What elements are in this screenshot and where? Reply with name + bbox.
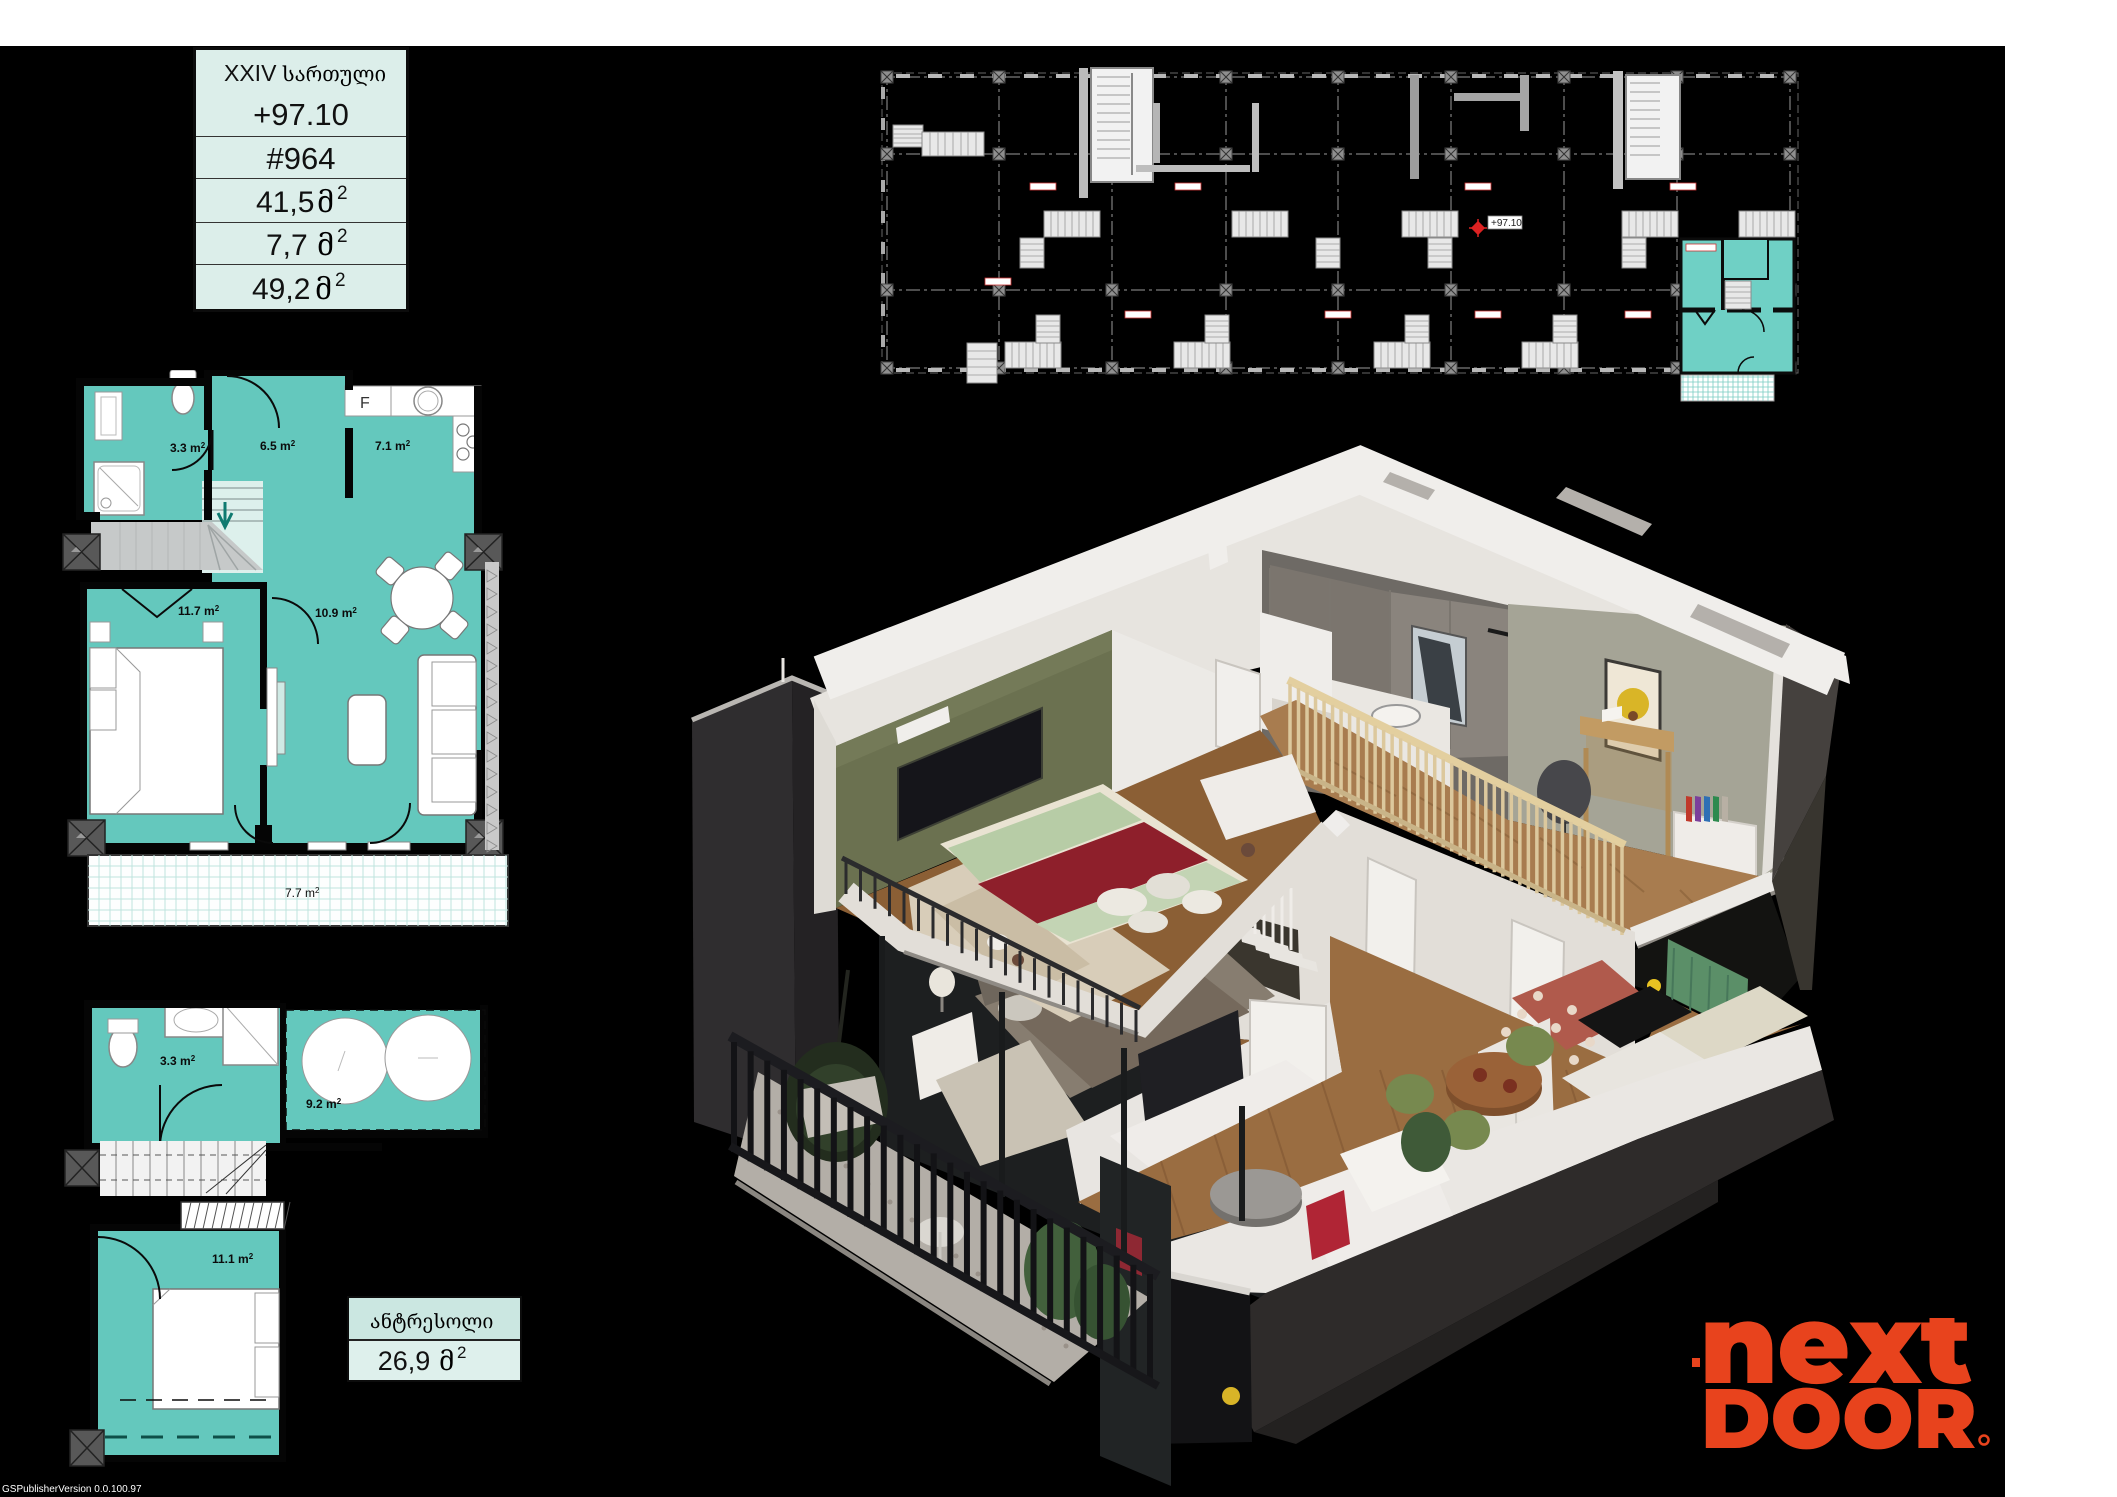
svg-text:11.1 m2: 11.1 m2 <box>212 1252 254 1266</box>
svg-text:7.1 m2: 7.1 m2 <box>375 439 411 453</box>
svg-text:7,7: 7,7 <box>266 229 308 262</box>
svg-text:#964: #964 <box>267 141 336 176</box>
svg-text:XXIV: XXIV <box>224 60 277 86</box>
svg-text:2: 2 <box>457 1343 466 1362</box>
svg-text:2: 2 <box>335 270 346 291</box>
svg-text:41,5: 41,5 <box>256 186 314 219</box>
svg-text:3.3 m2: 3.3 m2 <box>160 1054 196 1068</box>
svg-text:2: 2 <box>337 183 348 204</box>
svg-text:49,2: 49,2 <box>252 273 310 306</box>
svg-text:6.5 m2: 6.5 m2 <box>260 439 296 453</box>
svg-text:7.7 m2: 7.7 m2 <box>285 886 320 900</box>
svg-text:26,9: 26,9 <box>378 1346 431 1376</box>
svg-text:+97.10: +97.10 <box>253 97 349 132</box>
svg-text:2: 2 <box>337 226 348 247</box>
svg-text:10.9 m2: 10.9 m2 <box>315 606 357 620</box>
svg-text:9.2 m2: 9.2 m2 <box>306 1097 342 1111</box>
svg-text:3.3 m2: 3.3 m2 <box>170 441 206 455</box>
svg-text:F: F <box>360 395 370 412</box>
svg-text:+97.10: +97.10 <box>1491 218 1522 229</box>
svg-text:11.7 m2: 11.7 m2 <box>178 604 220 618</box>
